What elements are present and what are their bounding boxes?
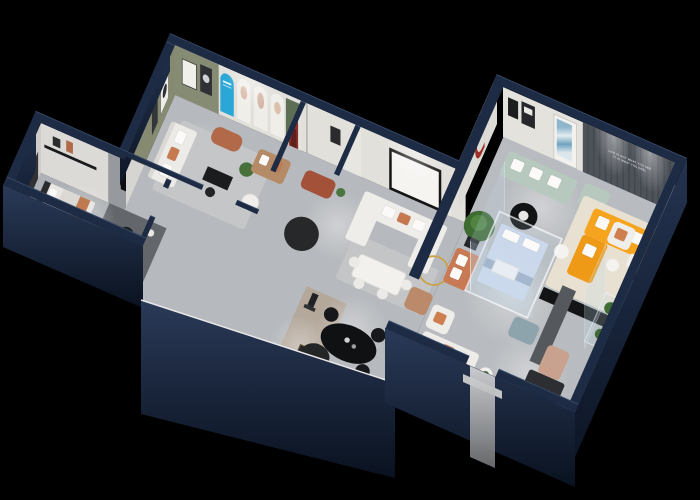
entry-mirror-strip [470,366,495,468]
overlay-svg [0,0,700,500]
showroom-floorplan-render: LIFE IS NOT WHAT YOU SEE IT IS WHAT YOU … [0,0,700,500]
